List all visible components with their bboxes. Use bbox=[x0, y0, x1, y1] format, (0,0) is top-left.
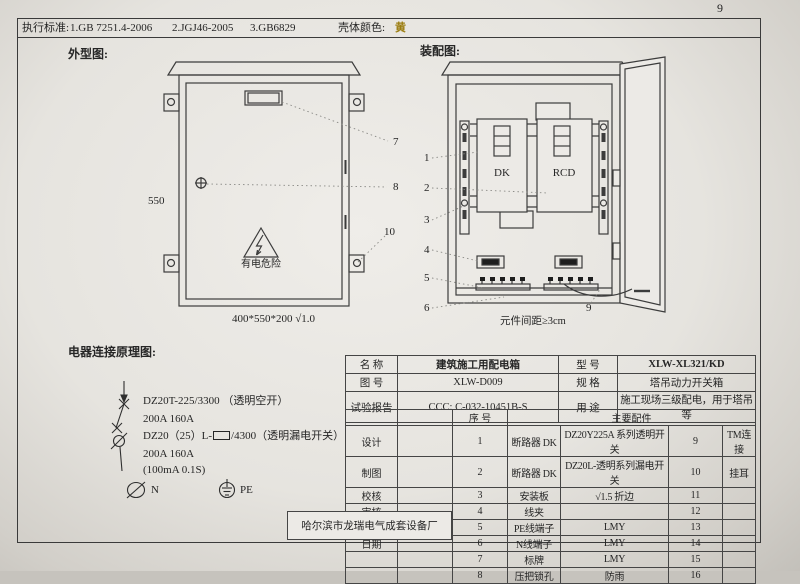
manufacturer-name: 哈尔滨市龙瑞电气成套设备厂 bbox=[301, 518, 438, 533]
part-spec: LMY bbox=[561, 520, 669, 536]
breaker-frame-box bbox=[213, 431, 230, 440]
schematic-line-3: DZ20（25）L-/4300（透明漏电开关） bbox=[143, 431, 344, 442]
part-spec: LMY bbox=[561, 536, 669, 552]
part-name: 安装板 bbox=[508, 488, 561, 504]
callout-3: 3 bbox=[424, 215, 430, 226]
part-name-2: 挂耳 bbox=[723, 457, 756, 488]
table-row: 设计 1 断路器 DK DZ20Y225A 系列透明开关 9 TM连接 bbox=[346, 426, 756, 457]
part-name-2 bbox=[723, 536, 756, 552]
callout-10: 10 bbox=[384, 227, 395, 238]
model-label: 型 号 bbox=[559, 356, 618, 374]
part-no: 2 bbox=[453, 457, 508, 488]
schematic-line-3-post: /4300（透明漏电开关） bbox=[231, 430, 344, 442]
credit-blank bbox=[346, 410, 398, 426]
neutral-label: N bbox=[151, 485, 159, 496]
callout-7: 7 bbox=[393, 137, 399, 148]
part-no-2: 15 bbox=[669, 552, 723, 568]
credit-label: 制图 bbox=[346, 457, 398, 488]
part-name: N线端子 bbox=[508, 536, 561, 552]
callout-1: 1 bbox=[424, 153, 430, 164]
part-spec: DZ20Y225A 系列透明开关 bbox=[561, 426, 669, 457]
part-no: 6 bbox=[453, 536, 508, 552]
part-no: 8 bbox=[453, 568, 508, 584]
credit-label: 设计 bbox=[346, 426, 398, 457]
outer-view-leaders bbox=[207, 102, 388, 262]
sign-cell bbox=[398, 488, 453, 504]
table-row: 制图 2 断路器 DK DZ20L-透明系列漏电开关 10 挂耳 bbox=[346, 457, 756, 488]
table-row: 8 压把锁孔 防雨 16 bbox=[346, 568, 756, 584]
callout-5: 5 bbox=[424, 273, 430, 284]
part-no: 1 bbox=[453, 426, 508, 457]
outer-height-dimension: 550 bbox=[148, 196, 165, 207]
part-no: 3 bbox=[453, 488, 508, 504]
part-name-2 bbox=[723, 520, 756, 536]
manufacturer-area bbox=[346, 568, 398, 584]
part-spec: LMY bbox=[561, 552, 669, 568]
callout-6: 6 bbox=[424, 303, 430, 314]
spec-value: 塔吊动力开关箱 bbox=[618, 374, 756, 392]
part-name-2 bbox=[723, 568, 756, 584]
part-no-2: 14 bbox=[669, 536, 723, 552]
table-row: 校核 3 安装板 √1.5 折边 11 bbox=[346, 488, 756, 504]
part-name-2: TM连接 bbox=[723, 426, 756, 457]
part-name: 断路器 DK bbox=[508, 426, 561, 457]
spec-label: 规 格 bbox=[559, 374, 618, 392]
part-no-2: 16 bbox=[669, 568, 723, 584]
manufacturer-area bbox=[398, 568, 453, 584]
part-no-2: 9 bbox=[669, 426, 723, 457]
danger-warning-text: 有电危险 bbox=[239, 260, 283, 270]
drawing-no-value: XLW-D009 bbox=[398, 374, 559, 392]
sign-cell bbox=[398, 426, 453, 457]
callout-2: 2 bbox=[424, 183, 430, 194]
schematic-line-3-pre: DZ20（25）L- bbox=[143, 430, 212, 442]
credit-label: 校核 bbox=[346, 488, 398, 504]
scanned-drawing-sheet: 9 执行标准: 1.GB 7251.4-2006 2.JGJ46-2005 3.… bbox=[0, 0, 800, 571]
part-name: 标牌 bbox=[508, 552, 561, 568]
part-name-2 bbox=[723, 488, 756, 504]
part-spec bbox=[561, 504, 669, 520]
table-row: 7 标牌 LMY 15 bbox=[346, 552, 756, 568]
schematic-line-4: 200A 160A bbox=[143, 449, 194, 460]
part-no: 5 bbox=[453, 520, 508, 536]
callout-8: 8 bbox=[393, 182, 399, 193]
part-name-2 bbox=[723, 552, 756, 568]
outer-size-caption: 400*550*200 √1.0 bbox=[232, 314, 315, 325]
part-name: 线夹 bbox=[508, 504, 561, 520]
pe-label: PE bbox=[240, 485, 253, 496]
sign-blank bbox=[398, 410, 453, 426]
dk-breaker-label: DK bbox=[490, 168, 514, 179]
parts-table: 序 号 主要配件 设计 1 断路器 DK DZ20Y225A 系列透明开关 9 … bbox=[345, 409, 756, 584]
name-label: 名 称 bbox=[346, 356, 398, 374]
assembly-spacing-caption: 元件间距≥3cm bbox=[500, 317, 566, 328]
part-spec: DZ20L-透明系列漏电开关 bbox=[561, 457, 669, 488]
callout-4: 4 bbox=[424, 245, 430, 256]
part-name: 压把锁孔 bbox=[508, 568, 561, 584]
part-no-2: 10 bbox=[669, 457, 723, 488]
part-no-2: 12 bbox=[669, 504, 723, 520]
sign-cell bbox=[398, 457, 453, 488]
schematic-line-2: 200A 160A bbox=[143, 414, 194, 425]
callout-9: 9 bbox=[586, 303, 592, 314]
schematic-line-5: (100mA 0.1S) bbox=[143, 465, 205, 476]
name-value: 建筑施工用配电箱 bbox=[398, 356, 559, 374]
rcd-breaker-label: RCD bbox=[548, 168, 580, 179]
seq-header: 序 号 bbox=[453, 410, 508, 426]
part-no-2: 11 bbox=[669, 488, 723, 504]
part-spec: √1.5 折边 bbox=[561, 488, 669, 504]
assembly-drawing bbox=[442, 57, 665, 312]
manufacturer-area bbox=[346, 552, 398, 568]
part-name: PE线端子 bbox=[508, 520, 561, 536]
model-value: XLW-XL321/KD bbox=[618, 356, 756, 374]
part-name-2 bbox=[723, 504, 756, 520]
part-no: 7 bbox=[453, 552, 508, 568]
manufacturer-area bbox=[398, 552, 453, 568]
manufacturer-box: 哈尔滨市龙瑞电气成套设备厂 bbox=[287, 511, 452, 540]
part-no: 4 bbox=[453, 504, 508, 520]
parts-header: 主要配件 bbox=[508, 410, 756, 426]
drawing-no-label: 图 号 bbox=[346, 374, 398, 392]
part-spec: 防雨 bbox=[561, 568, 669, 584]
part-name: 断路器 DK bbox=[508, 457, 561, 488]
part-no-2: 13 bbox=[669, 520, 723, 536]
schematic-line-1: DZ20T-225/3300 （透明空开） bbox=[143, 396, 288, 407]
